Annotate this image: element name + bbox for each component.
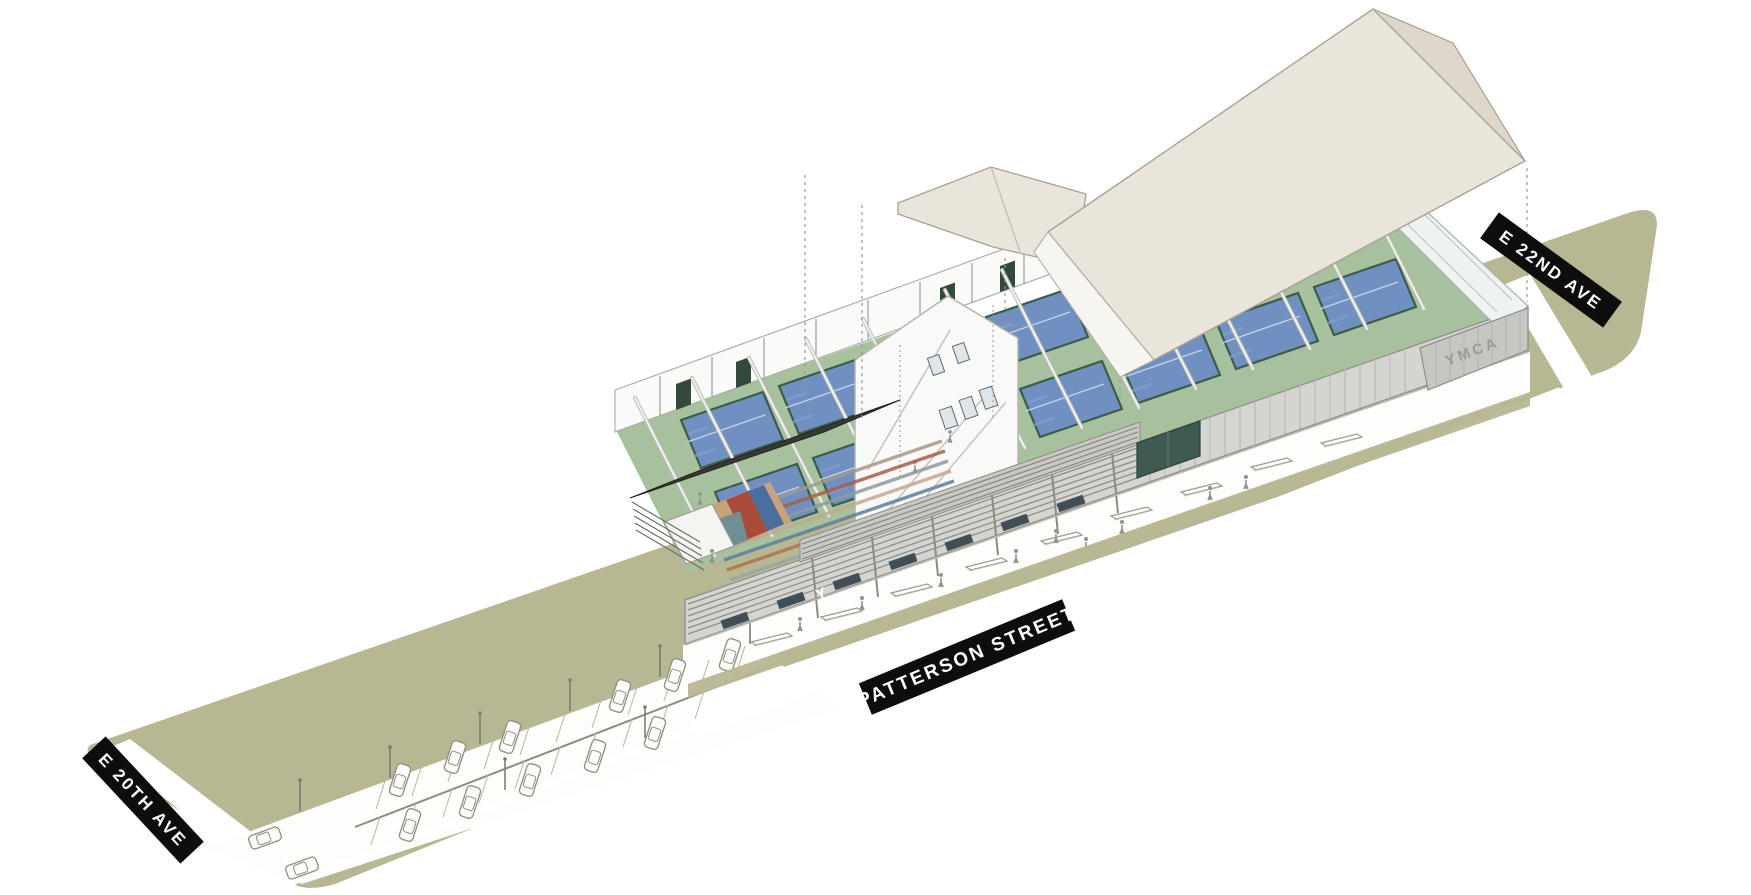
rendering-svg: Y YMCA — [0, 0, 1751, 895]
site-axonometric-rendering: Y YMCA — [0, 0, 1751, 895]
